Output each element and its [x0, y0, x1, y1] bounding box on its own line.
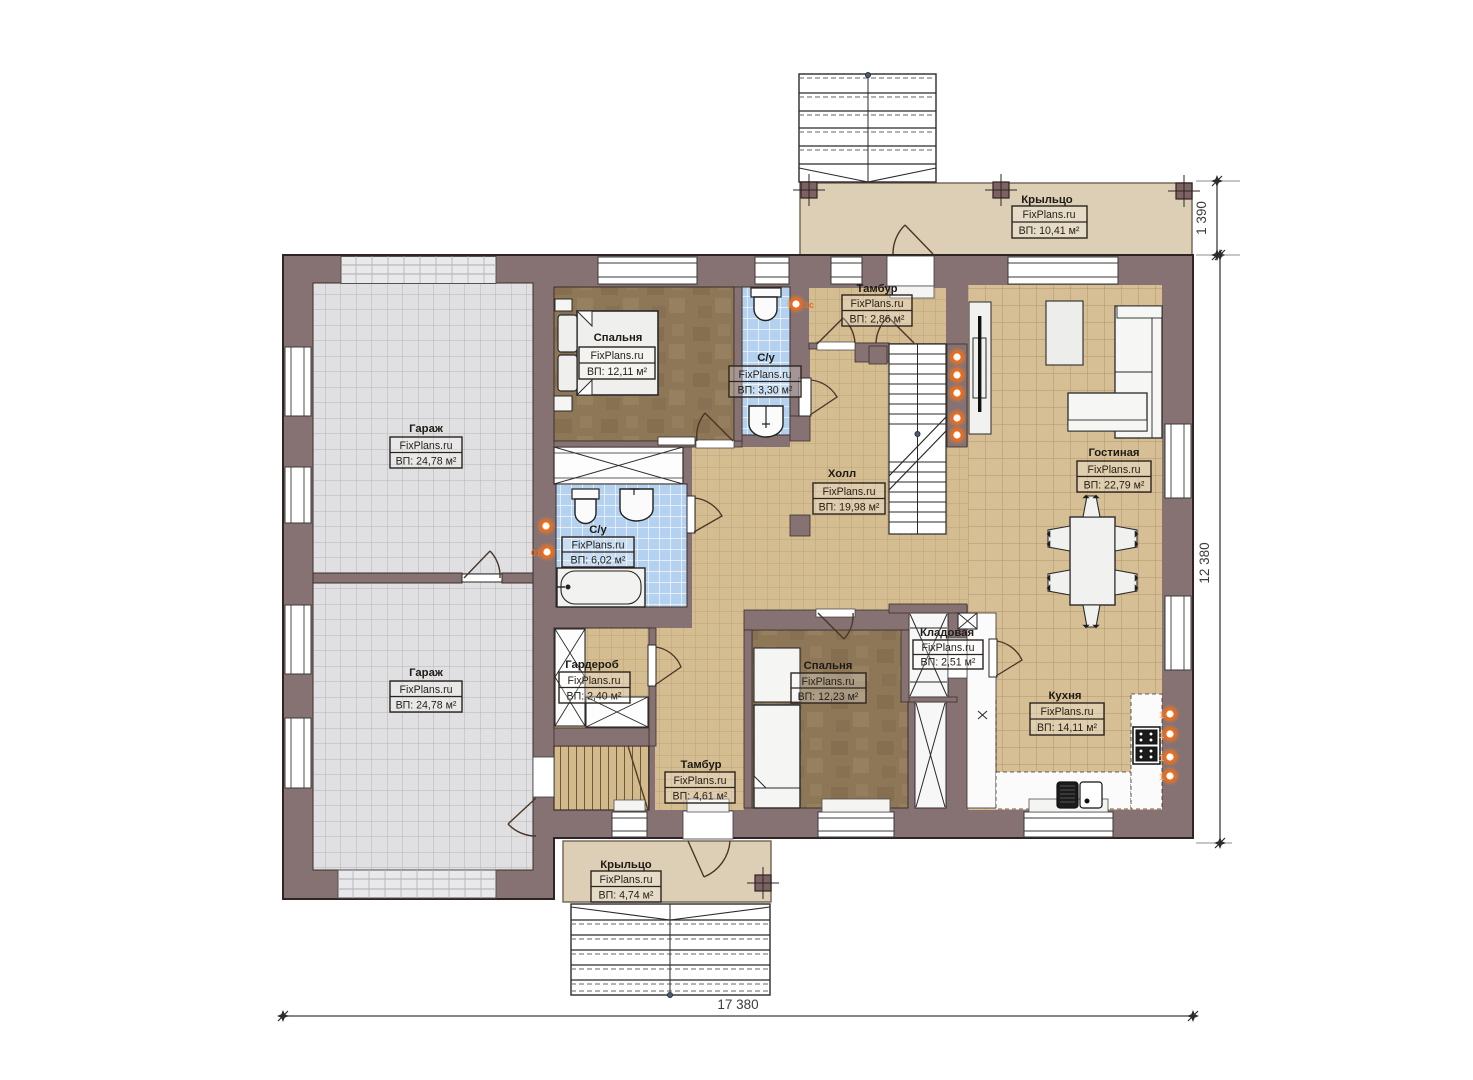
- svg-text:ВП: 2,51 м²: ВП: 2,51 м²: [921, 657, 976, 669]
- svg-text:ВП: 2,40 м²: ВП: 2,40 м²: [567, 691, 622, 703]
- svg-text:Холл: Холл: [828, 468, 856, 480]
- svg-text:ВП: 3,30 м²: ВП: 3,30 м²: [738, 385, 793, 397]
- svg-text:FixPlans.ru: FixPlans.ru: [591, 350, 644, 362]
- svg-text:FixPlans.ru: FixPlans.ru: [802, 676, 855, 688]
- svg-text:Гараж: Гараж: [409, 667, 444, 679]
- svg-text:FixPlans.ru: FixPlans.ru: [572, 540, 625, 552]
- svg-text:01: 01: [531, 548, 541, 558]
- svg-text:ВП: 10,41 м²: ВП: 10,41 м²: [1019, 225, 1080, 237]
- svg-text:Крыльцо: Крыльцо: [600, 859, 652, 871]
- svg-text:Гардероб: Гардероб: [565, 659, 618, 671]
- svg-text:Спальня: Спальня: [804, 660, 853, 672]
- svg-text:FixPlans.ru: FixPlans.ru: [400, 440, 453, 452]
- svg-text:FixPlans.ru: FixPlans.ru: [823, 486, 876, 498]
- svg-text:Крыльцо: Крыльцо: [1021, 194, 1073, 206]
- svg-text:Кладовая: Кладовая: [920, 627, 974, 639]
- svg-text:17 380: 17 380: [717, 997, 758, 1012]
- svg-text:ВП: 6,02 м²: ВП: 6,02 м²: [571, 555, 626, 567]
- svg-text:ВП: 14,11 м²: ВП: 14,11 м²: [1037, 722, 1098, 734]
- svg-text:FixPlans.ru: FixPlans.ru: [1088, 464, 1141, 476]
- svg-text:FixPlans.ru: FixPlans.ru: [1023, 209, 1076, 221]
- svg-text:ВП: 24,78 м²: ВП: 24,78 м²: [396, 456, 457, 468]
- svg-text:Спальня: Спальня: [594, 332, 643, 344]
- svg-text:1с: 1с: [804, 300, 814, 310]
- svg-text:С/у: С/у: [589, 524, 607, 536]
- svg-text:12 380: 12 380: [1197, 542, 1212, 583]
- svg-text:FixPlans.ru: FixPlans.ru: [922, 642, 975, 654]
- svg-text:FixPlans.ru: FixPlans.ru: [851, 298, 904, 310]
- svg-text:FixPlans.ru: FixPlans.ru: [739, 369, 792, 381]
- svg-text:ВП: 12,23 м²: ВП: 12,23 м²: [798, 691, 859, 703]
- svg-text:FixPlans.ru: FixPlans.ru: [674, 775, 727, 787]
- svg-text:ВП: 4,74 м²: ВП: 4,74 м²: [599, 890, 654, 902]
- svg-text:ВП: 4,61 м²: ВП: 4,61 м²: [673, 791, 728, 803]
- svg-text:ВП: 22,79 м²: ВП: 22,79 м²: [1084, 480, 1145, 492]
- svg-text:FixPlans.ru: FixPlans.ru: [600, 874, 653, 886]
- svg-text:FixPlans.ru: FixPlans.ru: [1041, 706, 1094, 718]
- svg-text:ВП: 19,98 м²: ВП: 19,98 м²: [819, 502, 880, 514]
- svg-text:ВП: 24,78 м²: ВП: 24,78 м²: [396, 700, 457, 712]
- svg-text:FixPlans.ru: FixPlans.ru: [400, 684, 453, 696]
- svg-text:С/у: С/у: [757, 352, 775, 364]
- svg-text:Кухня: Кухня: [1048, 690, 1081, 702]
- svg-text:FixPlans.ru: FixPlans.ru: [568, 675, 621, 687]
- svg-text:Тамбур: Тамбур: [681, 759, 722, 771]
- svg-text:Тамбур: Тамбур: [857, 283, 898, 295]
- svg-text:Гостиная: Гостиная: [1088, 447, 1139, 459]
- svg-text:ВП: 12,11 м²: ВП: 12,11 м²: [587, 366, 648, 378]
- svg-text:ВП: 2,86 м²: ВП: 2,86 м²: [850, 314, 905, 326]
- svg-text:Гараж: Гараж: [409, 423, 444, 435]
- svg-text:1 390: 1 390: [1194, 201, 1209, 235]
